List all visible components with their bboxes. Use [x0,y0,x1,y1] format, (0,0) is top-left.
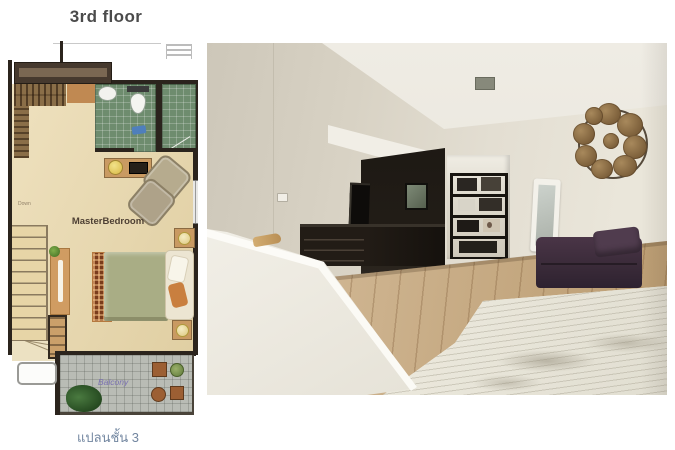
wicker-wall-art [573,103,651,183]
plan-caption: แปลนชั้น 3 [0,427,216,448]
planter-box [17,362,57,385]
balcony-round-table [151,387,166,402]
purple-sofa [536,229,642,291]
bathroom-wall [95,148,134,152]
desk-runner [58,260,63,302]
balcony: Balcony [60,355,194,415]
hallway-window [405,183,428,210]
room-photo [207,43,667,395]
balcony-stool [170,386,184,400]
balcony-planter [170,363,184,377]
toilet-tank [127,86,149,92]
bed-blanket [104,252,168,321]
listing-image: 3rd floor MasterBedroom [0,0,675,450]
desk-plant [49,246,60,257]
bathroom-wall [156,148,196,152]
nightstand-lamp [176,324,189,337]
sofa-pillow [593,226,642,257]
dimension-line [53,43,161,44]
floor-plan: MasterBedroom Down Balcony [8,50,200,418]
nightstand-lamp [178,232,191,245]
nightstand [174,228,195,248]
bookshelf [450,173,508,259]
balcony-label: Balcony [98,377,128,387]
side-cabinet [14,106,29,158]
ceiling-vent [475,77,495,90]
wardrobe [14,62,112,84]
photo-wall-corner [273,43,274,235]
sofa-seam [541,263,637,265]
sink [98,86,117,101]
stairs-down-label: Down [18,201,31,207]
wall-stub [60,41,63,62]
vent-symbol [166,44,192,59]
master-bedroom-label: MasterBedroom [38,216,178,227]
dark-dresser [300,224,445,266]
lamp [108,160,123,175]
window [193,180,198,224]
dresser-top [67,84,96,103]
right-edge-shading [641,43,667,395]
nightstand [172,320,192,340]
staircase [12,225,48,341]
balcony-square-table [152,362,167,377]
shower-room [162,84,196,152]
closet [14,84,66,106]
wall-outlet [277,193,288,202]
balcony-plant [66,385,102,412]
page-title: 3rd floor [0,7,212,27]
wardrobe-rod [19,68,107,77]
armchair [133,160,189,224]
